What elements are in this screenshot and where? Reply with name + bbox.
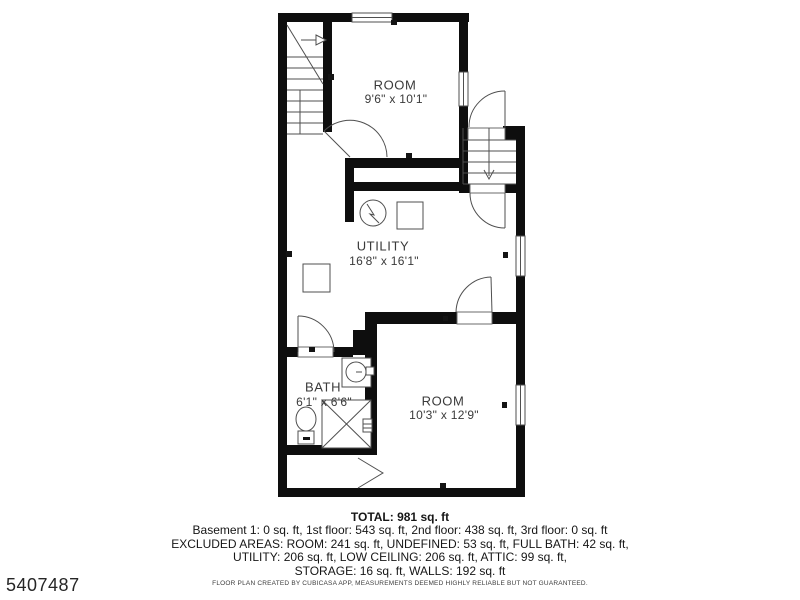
room-top-dims: 9'6" x 10'1" <box>365 92 428 106</box>
floor-plan-page: ROOM 9'6" x 10'1" UTILITY 16'8" x 16'1" … <box>0 0 800 600</box>
window-room-top-icon <box>459 72 468 106</box>
window-room-bottom-icon <box>516 385 525 425</box>
water-heater-icon <box>360 200 386 226</box>
appliance-icon-2 <box>303 264 330 292</box>
utility-label: UTILITY <box>357 239 410 254</box>
door-room-top-icon <box>324 120 387 157</box>
window-top-icon <box>352 13 392 22</box>
bath-dims: 6'1" x 6'6" <box>296 395 352 409</box>
toilet-icon <box>296 407 316 444</box>
door-landing-upper-icon <box>469 91 505 127</box>
appliance-icon <box>397 202 423 229</box>
room-bottom-label: ROOM <box>422 394 465 409</box>
room-top-label: ROOM <box>374 78 417 93</box>
disclaimer-text: FLOOR PLAN CREATED BY CUBICASA APP, MEAS… <box>0 580 800 587</box>
door-room-bottom-icon <box>456 277 492 313</box>
access-chevron-icon <box>358 458 383 488</box>
total-area: TOTAL: 981 sq. ft <box>0 511 800 524</box>
door-landing-lower-icon <box>470 193 505 228</box>
room-bottom-dims: 10'3" x 12'9" <box>409 408 479 422</box>
floor-areas-line: Basement 1: 0 sq. ft, 1st floor: 543 sq.… <box>0 524 800 537</box>
excluded-areas-line-2: UTILITY: 206 sq. ft, LOW CEILING: 206 sq… <box>0 551 800 564</box>
excluded-areas-line-1: EXCLUDED AREAS: ROOM: 241 sq. ft, UNDEFI… <box>0 538 800 551</box>
window-utility-icon <box>516 236 525 276</box>
utility-dims: 16'8" x 16'1" <box>349 254 419 268</box>
sink-icon <box>342 358 374 387</box>
area-summary: TOTAL: 981 sq. ft Basement 1: 0 sq. ft, … <box>0 511 800 578</box>
bath-label: BATH <box>305 380 341 395</box>
excluded-areas-line-3: STORAGE: 16 sq. ft, WALLS: 192 sq. ft <box>0 565 800 578</box>
listing-id: 5407487 <box>6 575 80 596</box>
stairs-up-icon <box>287 25 326 134</box>
